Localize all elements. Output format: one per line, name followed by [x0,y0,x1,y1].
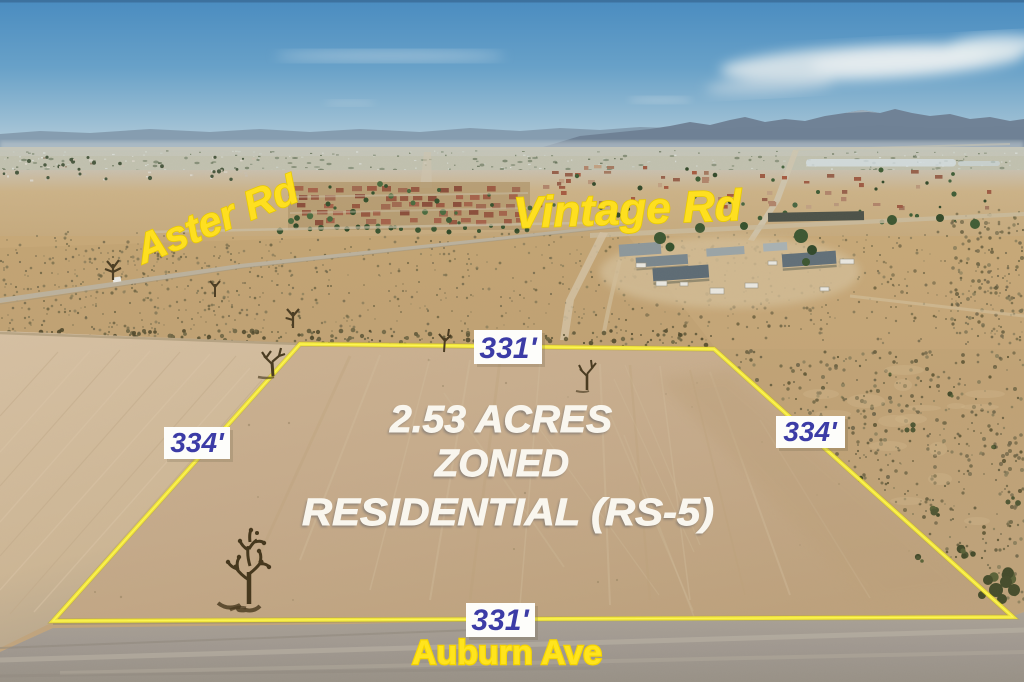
svg-text:ZONED: ZONED [434,443,569,485]
svg-text:334': 334' [170,427,225,458]
svg-text:334': 334' [783,416,838,447]
svg-text:RESIDENTIAL (RS-5): RESIDENTIAL (RS-5) [302,492,714,534]
svg-text:331': 331' [479,332,537,365]
svg-text:Auburn Ave: Auburn Ave [412,634,602,672]
svg-text:331': 331' [471,604,529,637]
svg-text:Vintage Rd: Vintage Rd [513,181,744,238]
svg-text:2.53 ACRES: 2.53 ACRES [389,399,612,441]
